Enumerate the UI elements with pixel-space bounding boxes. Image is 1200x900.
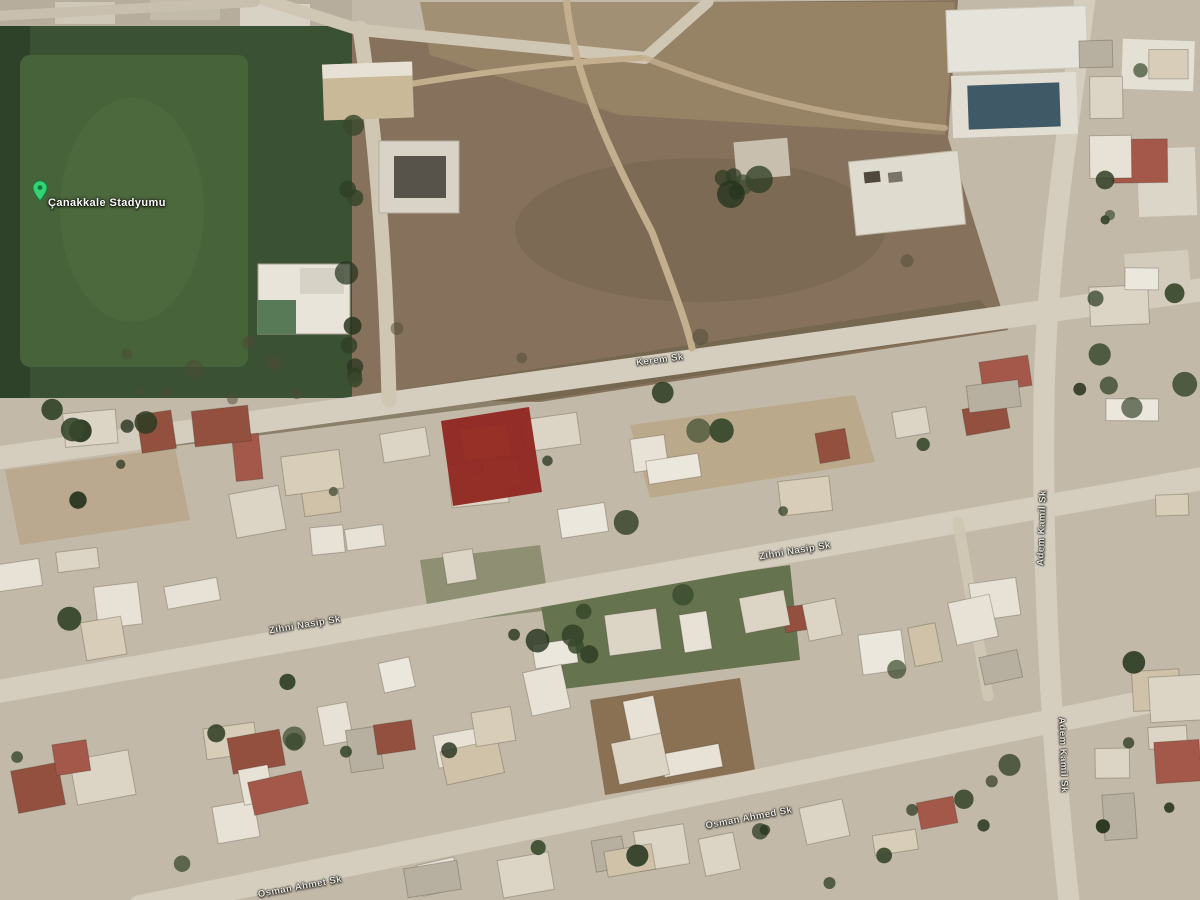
satellite-map[interactable]: Çanakkale Stadyumu Kerem SkZihni Nasip S… xyxy=(0,0,1200,900)
stadium-pin[interactable] xyxy=(32,180,48,202)
place-label: Çanakkale Stadyumu xyxy=(48,197,166,209)
street-label: Osman Ahmet Sk xyxy=(257,874,343,900)
street-label: Zihni Nasip Sk xyxy=(268,614,341,637)
street-label: Adem Kamil Sk xyxy=(1035,490,1049,566)
map-pin-icon xyxy=(32,180,48,202)
street-label: Kerem Sk xyxy=(636,351,685,368)
labels-layer: Çanakkale Stadyumu Kerem SkZihni Nasip S… xyxy=(0,0,1200,900)
street-label: Adem Kamil Sk xyxy=(1056,717,1070,793)
street-label: Zihni Nasip Sk xyxy=(758,540,831,563)
street-label: Osman Ahmed Sk xyxy=(705,805,793,832)
